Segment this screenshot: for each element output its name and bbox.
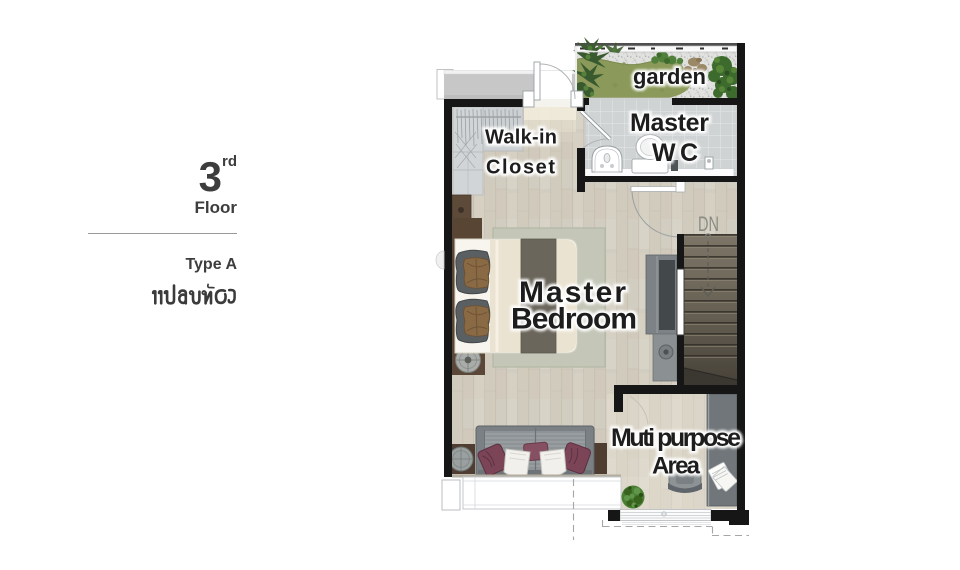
svg-text:Muti purpose: Muti purpose	[611, 424, 741, 452]
svg-text:Bedroom: Bedroom	[511, 303, 637, 336]
svg-text:DN: DN	[698, 213, 719, 236]
svg-text:Master: Master	[630, 109, 709, 137]
svg-text:Closet: Closet	[486, 157, 555, 179]
svg-text:Walk-in: Walk-in	[485, 127, 557, 149]
svg-text:Area: Area	[652, 453, 701, 480]
svg-text:WC: WC	[652, 139, 698, 167]
svg-text:garden: garden	[633, 64, 706, 89]
